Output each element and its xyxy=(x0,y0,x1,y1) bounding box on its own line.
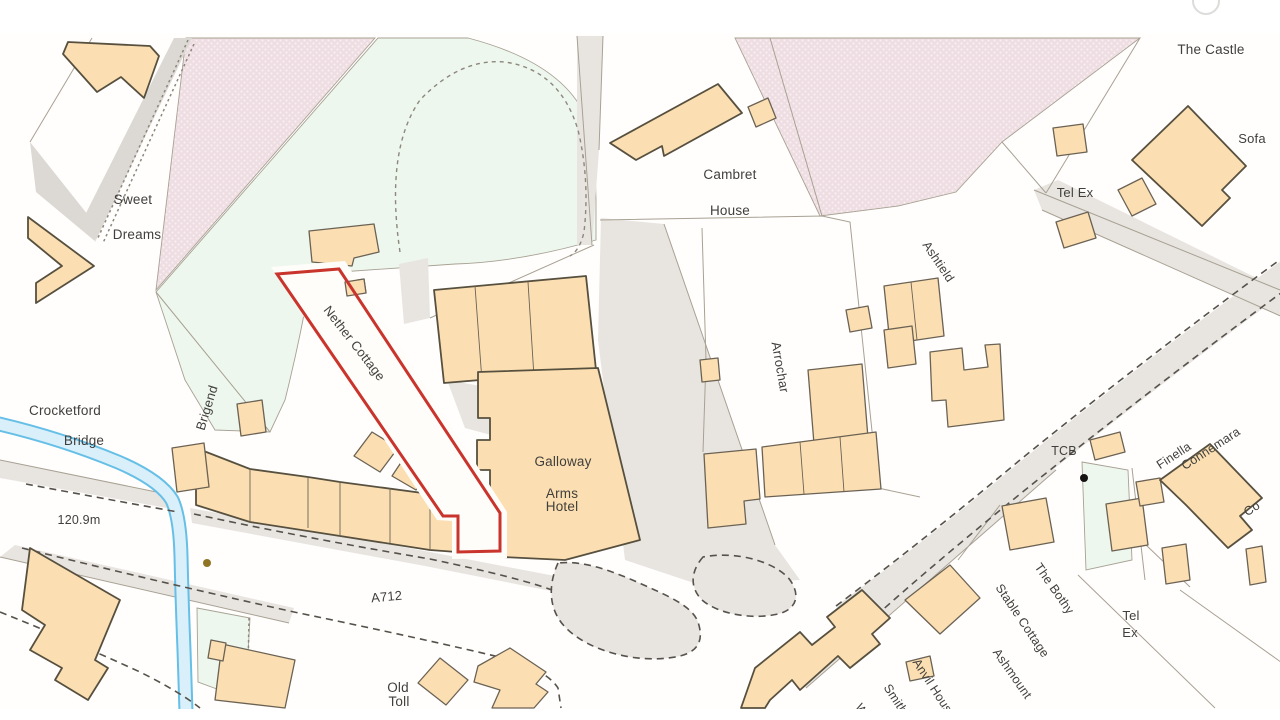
building-terrace-west-end xyxy=(172,443,209,492)
building-arrochar-tall xyxy=(808,364,868,444)
yard-track-south xyxy=(399,258,430,324)
map-label-galloway: Galloway xyxy=(534,454,591,469)
building-finella xyxy=(1136,478,1164,506)
building-brigend xyxy=(237,400,266,436)
map-label-toll: Toll xyxy=(388,694,409,709)
building-ashtield-small xyxy=(884,326,916,368)
building-small-by-green xyxy=(208,640,226,661)
map-label-tcb: TCB xyxy=(1051,444,1077,458)
map-canvas[interactable]: The CastleSofaTel ExSweetDreamsCambretHo… xyxy=(0,0,1280,720)
map-label-sweet: Sweet xyxy=(114,192,153,207)
partial-control-circle xyxy=(1193,0,1219,14)
map-label-tel-ex-north: Tel Ex xyxy=(1057,185,1094,200)
map-marker-spot-height-dot xyxy=(203,559,211,567)
map-label-bridge: Bridge xyxy=(64,433,104,448)
map-label-tel-ex-south-line2: Ex xyxy=(1122,625,1138,640)
building-ashtield-diamond xyxy=(846,306,872,332)
building-telex-north-square xyxy=(1053,124,1087,156)
map-label-sofa: Sofa xyxy=(1238,131,1266,146)
map-label-tel-ex-south-line1: Tel xyxy=(1122,608,1139,623)
building-arrochar-small xyxy=(700,358,720,382)
building-hotel-north-block xyxy=(434,276,596,383)
map-label-old: Old xyxy=(387,680,409,695)
map-label-cambret-house: House xyxy=(710,203,750,218)
map-label-crocketford: Crocketford xyxy=(29,403,101,418)
building-connemara-tail xyxy=(1162,544,1190,584)
map-label-dreams: Dreams xyxy=(113,227,162,242)
building-right-edge-partial xyxy=(1246,546,1266,585)
map-label-spot-height: 120.9m xyxy=(58,513,101,527)
building-bothy xyxy=(1002,498,1054,550)
map-label-cambret: Cambret xyxy=(703,167,756,182)
map-label-hotel: Hotel xyxy=(546,499,579,514)
map-label-a712: A712 xyxy=(370,588,402,606)
map-marker-tcb-point-dot xyxy=(1080,474,1088,482)
map-label-the-castle: The Castle xyxy=(1177,42,1244,57)
map-viewport: The CastleSofaTel ExSweetDreamsCambretHo… xyxy=(0,0,1280,720)
